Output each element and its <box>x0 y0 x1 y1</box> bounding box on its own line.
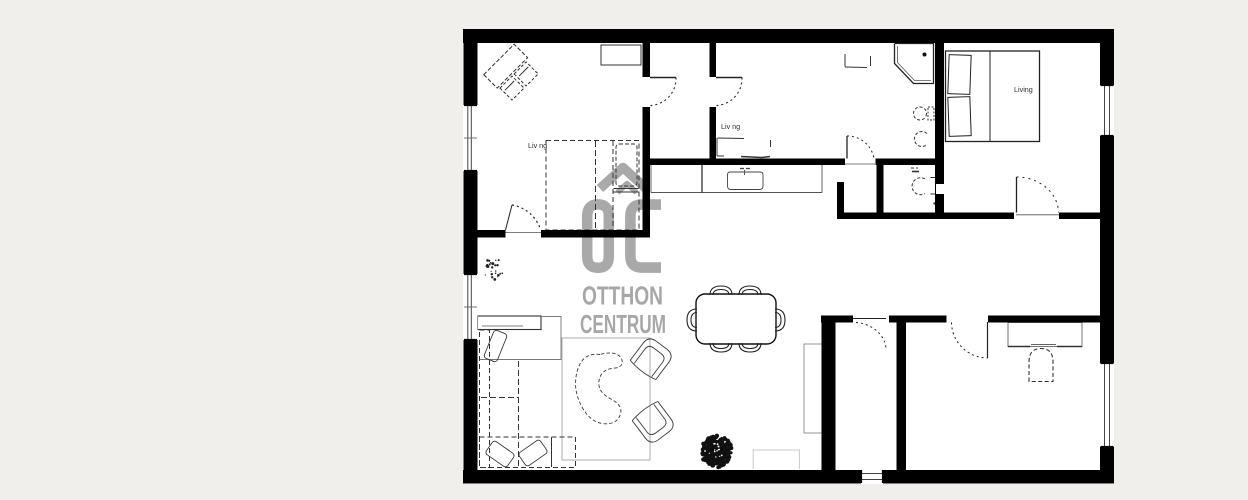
svg-text:OTTHON: OTTHON <box>582 281 663 311</box>
svg-text:Liv ng: Liv ng <box>721 122 740 131</box>
svg-text:Liv ng: Liv ng <box>528 141 547 150</box>
svg-text:Living: Living <box>1014 85 1033 94</box>
svg-text:CENTRUM: CENTRUM <box>580 309 666 339</box>
